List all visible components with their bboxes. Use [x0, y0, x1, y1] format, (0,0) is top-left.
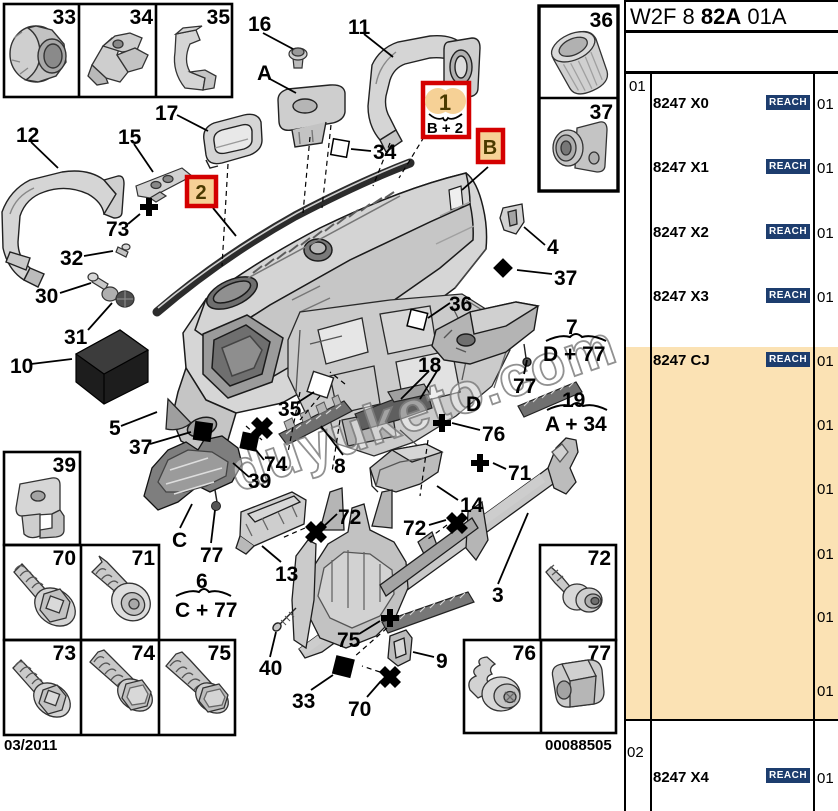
- svg-text:16: 16: [248, 13, 271, 36]
- svg-text:76: 76: [482, 423, 505, 446]
- svg-text:36: 36: [449, 293, 472, 316]
- svg-text:03/2011: 03/2011: [4, 737, 57, 754]
- svg-text:2: 2: [195, 182, 206, 204]
- svg-text:75: 75: [208, 642, 232, 665]
- svg-text:75: 75: [337, 629, 361, 652]
- svg-text:73: 73: [53, 642, 76, 665]
- svg-text:72: 72: [403, 517, 426, 540]
- svg-text:72: 72: [338, 506, 361, 529]
- svg-text:11: 11: [348, 16, 371, 39]
- svg-text:34: 34: [130, 6, 154, 29]
- svg-text:37: 37: [129, 436, 152, 459]
- svg-text:73: 73: [106, 218, 129, 241]
- svg-text:33: 33: [53, 6, 76, 29]
- svg-text:39: 39: [248, 470, 271, 493]
- svg-text:71: 71: [132, 547, 156, 570]
- svg-text:00088505: 00088505: [545, 737, 612, 754]
- svg-text:33: 33: [292, 690, 315, 713]
- svg-text:13: 13: [275, 563, 298, 586]
- svg-text:77: 77: [513, 375, 536, 398]
- svg-text:32: 32: [60, 247, 83, 270]
- svg-text:76: 76: [513, 642, 536, 665]
- svg-text:77: 77: [200, 544, 223, 567]
- svg-text:17: 17: [155, 102, 178, 125]
- svg-text:35: 35: [207, 6, 231, 29]
- svg-text:35: 35: [278, 398, 302, 421]
- svg-text:70: 70: [53, 547, 76, 570]
- svg-text:39: 39: [53, 454, 76, 477]
- svg-text:6: 6: [196, 570, 208, 593]
- svg-text:7: 7: [566, 316, 578, 339]
- svg-text:37: 37: [590, 101, 613, 124]
- svg-text:19: 19: [562, 389, 585, 412]
- svg-text:B: B: [483, 137, 497, 159]
- svg-text:36: 36: [590, 9, 613, 32]
- svg-text:3: 3: [492, 584, 504, 607]
- svg-text:31: 31: [64, 326, 88, 349]
- svg-text:4: 4: [547, 236, 559, 259]
- svg-text:12: 12: [16, 124, 39, 147]
- svg-text:1: 1: [439, 90, 451, 115]
- svg-text:D: D: [466, 393, 481, 416]
- svg-text:71: 71: [508, 462, 532, 485]
- svg-text:10: 10: [10, 355, 33, 378]
- svg-text:B + 2: B + 2: [427, 120, 463, 137]
- svg-text:15: 15: [118, 126, 142, 149]
- svg-text:14: 14: [460, 494, 484, 517]
- svg-text:A + 34: A + 34: [545, 413, 607, 436]
- svg-text:9: 9: [436, 650, 448, 673]
- svg-text:74: 74: [132, 642, 156, 665]
- svg-text:5: 5: [109, 417, 121, 440]
- svg-text:A: A: [257, 62, 272, 85]
- svg-text:40: 40: [259, 657, 282, 680]
- svg-text:37: 37: [554, 267, 577, 290]
- svg-text:34: 34: [373, 141, 397, 164]
- svg-text:C: C: [172, 529, 187, 552]
- svg-text:C + 77: C + 77: [175, 599, 237, 622]
- svg-text:18: 18: [418, 354, 442, 377]
- svg-text:D + 77: D + 77: [543, 343, 605, 366]
- svg-text:72: 72: [588, 547, 611, 570]
- svg-text:30: 30: [35, 285, 58, 308]
- svg-text:8: 8: [334, 455, 346, 478]
- svg-text:70: 70: [348, 698, 371, 721]
